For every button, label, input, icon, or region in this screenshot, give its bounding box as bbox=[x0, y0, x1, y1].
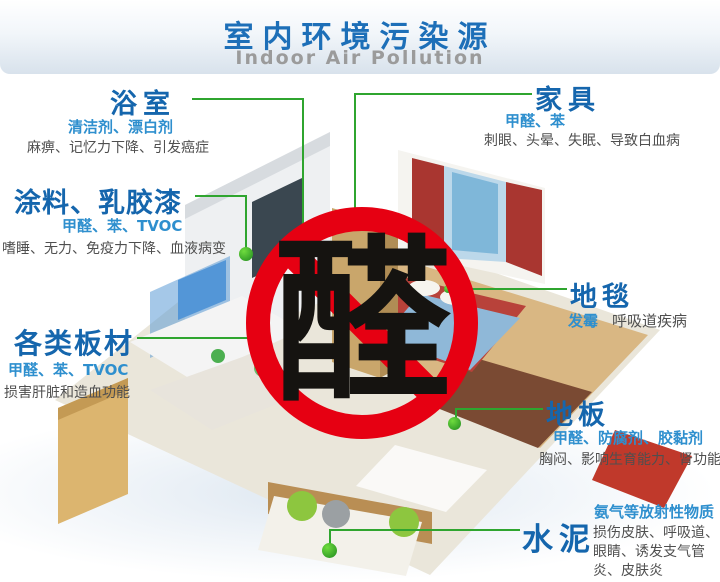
boards-title: 各类板材 bbox=[14, 322, 134, 362]
infographic-indoor-air-pollution: 室内环境污染源 Indoor Air Pollution bbox=[0, 0, 720, 582]
cement-title: 水泥 bbox=[522, 514, 596, 559]
connector-line-bathroom-h bbox=[192, 98, 304, 100]
bathroom-effects: 麻痹、记忆力下降、引发癌症 bbox=[27, 137, 209, 157]
cement-effects: 损伤皮肤、呼吸道、眼睛、诱发支气管炎、皮肤炎 bbox=[593, 524, 719, 581]
carpet-effects: 呼吸道疾病 bbox=[612, 310, 687, 331]
room-plant bbox=[211, 349, 225, 363]
label-boards: 各类板材 bbox=[14, 322, 134, 362]
no-aldehyde-sign: 醛 bbox=[246, 207, 478, 439]
connector-line-boards-h bbox=[137, 337, 248, 339]
paint-effects: 嗜睡、无力、免疫力下降、血液病变 bbox=[2, 238, 226, 258]
room-cushion-gray bbox=[322, 500, 350, 528]
boards-effects: 损害肝脏和造血功能 bbox=[4, 382, 130, 402]
label-carpet: 地毯 bbox=[570, 275, 634, 314]
furniture-pollutants: 甲醛、苯 bbox=[505, 110, 565, 131]
carpet-pollutants: 发霉 bbox=[568, 310, 598, 331]
room-curtain-right bbox=[506, 182, 542, 276]
connector-dot-cement bbox=[322, 543, 337, 558]
paint-pollutants: 甲醛、苯、TVOC bbox=[62, 215, 182, 236]
aldehyde-character: 醛 bbox=[246, 219, 478, 429]
floor-pollutants: 甲醛、防腐剂、胶黏剂 bbox=[553, 427, 703, 448]
room-cushion-green bbox=[389, 507, 419, 537]
room-cushion-green bbox=[287, 491, 317, 521]
connector-line-cement-h bbox=[330, 529, 520, 531]
label-cement: 水泥 bbox=[522, 514, 596, 559]
connector-line-furniture-h bbox=[354, 93, 532, 95]
furniture-effects: 刺眼、头晕、失眠、导致白血病 bbox=[484, 130, 680, 150]
bathroom-pollutants: 清洁剂、漂白剂 bbox=[68, 116, 173, 137]
floor-effects: 胸闷、影响生育能力、肾功能 bbox=[539, 449, 720, 469]
connector-line-furniture-v bbox=[354, 93, 356, 213]
boards-pollutants: 甲醛、苯、TVOC bbox=[8, 359, 128, 380]
connector-line-paint-h bbox=[195, 195, 247, 197]
cement-pollutants: 氨气等放射性物质 bbox=[594, 501, 714, 522]
carpet-title: 地毯 bbox=[570, 275, 634, 314]
